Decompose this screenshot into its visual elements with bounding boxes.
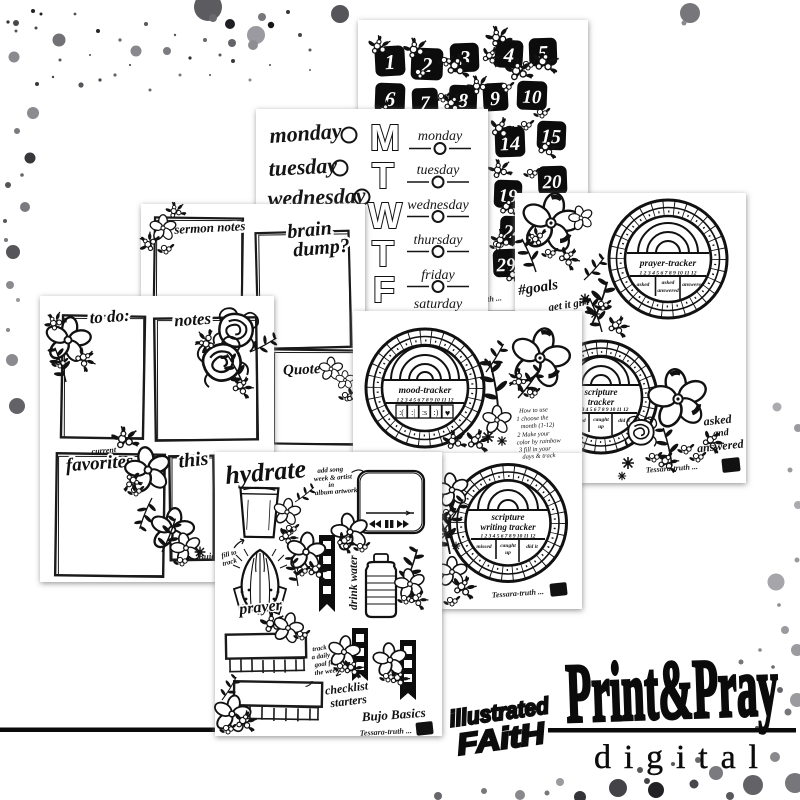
svg-text:Quote: Quote	[283, 361, 322, 379]
svg-text:prayer-tracker: prayer-tracker	[639, 259, 697, 269]
svg-text:up: up	[505, 550, 511, 556]
svg-text:Bujo: Bujo	[196, 550, 216, 562]
svg-text:notes: notes	[174, 309, 212, 331]
svg-text:W: W	[368, 195, 402, 236]
svg-text:saturday: saturday	[414, 297, 463, 312]
svg-text:1 2 3 4 5 6 7 8 9 10 11 12: 1 2 3 4 5 6 7 8 9 10 11 12	[639, 271, 696, 277]
svg-text:did it: did it	[526, 544, 538, 550]
svg-text:monday: monday	[418, 129, 463, 144]
svg-text:this: this	[177, 448, 209, 473]
svg-text:8: 8	[458, 90, 469, 112]
svg-text:F: F	[373, 269, 395, 310]
svg-text:scripture: scripture	[583, 387, 617, 397]
svg-text::): :)	[434, 408, 439, 417]
svg-text::s: :s	[422, 408, 427, 417]
svg-text:up: up	[598, 424, 604, 430]
svg-text:monday: monday	[269, 118, 343, 148]
svg-text:caught: caught	[500, 543, 516, 549]
svg-text:1 2 3 4 5 6 7 8 9 10 11 12: 1 2 3 4 5 6 7 8 9 10 11 12	[396, 398, 453, 404]
svg-text:M: M	[370, 117, 400, 158]
svg-text:Print&Pray: Print&Pray	[564, 640, 779, 740]
svg-text:tracker: tracker	[588, 397, 615, 407]
svg-text::|: :|	[411, 408, 415, 417]
svg-text:4: 4	[502, 43, 515, 68]
svg-text:1 2 3 4 5 6 7 8 9 10 11 12: 1 2 3 4 5 6 7 8 9 10 11 12	[481, 534, 536, 540]
svg-text:caught: caught	[593, 417, 609, 423]
svg-text:T: T	[372, 233, 394, 274]
svg-text:answered: answered	[682, 282, 704, 288]
svg-text:T: T	[372, 155, 394, 196]
svg-text:writing tracker: writing tracker	[480, 522, 536, 532]
svg-text::(: :(	[399, 408, 404, 417]
svg-text:asked: asked	[637, 282, 650, 288]
svg-text:mood-tracker: mood-tracker	[399, 386, 452, 396]
svg-text:answered: answered	[657, 288, 679, 294]
svg-text:9: 9	[490, 88, 501, 110]
svg-text:20: 20	[541, 172, 562, 194]
svg-text:missed: missed	[476, 544, 492, 550]
svg-text:to do:: to do:	[89, 306, 130, 328]
svg-text:tuesday: tuesday	[268, 152, 338, 181]
svg-text:drink water: drink water	[348, 555, 360, 610]
svg-text:10: 10	[522, 87, 542, 109]
svg-text:scripture: scripture	[490, 512, 524, 522]
svg-text:asked: asked	[662, 280, 675, 286]
svg-text:♥: ♥	[445, 408, 450, 418]
